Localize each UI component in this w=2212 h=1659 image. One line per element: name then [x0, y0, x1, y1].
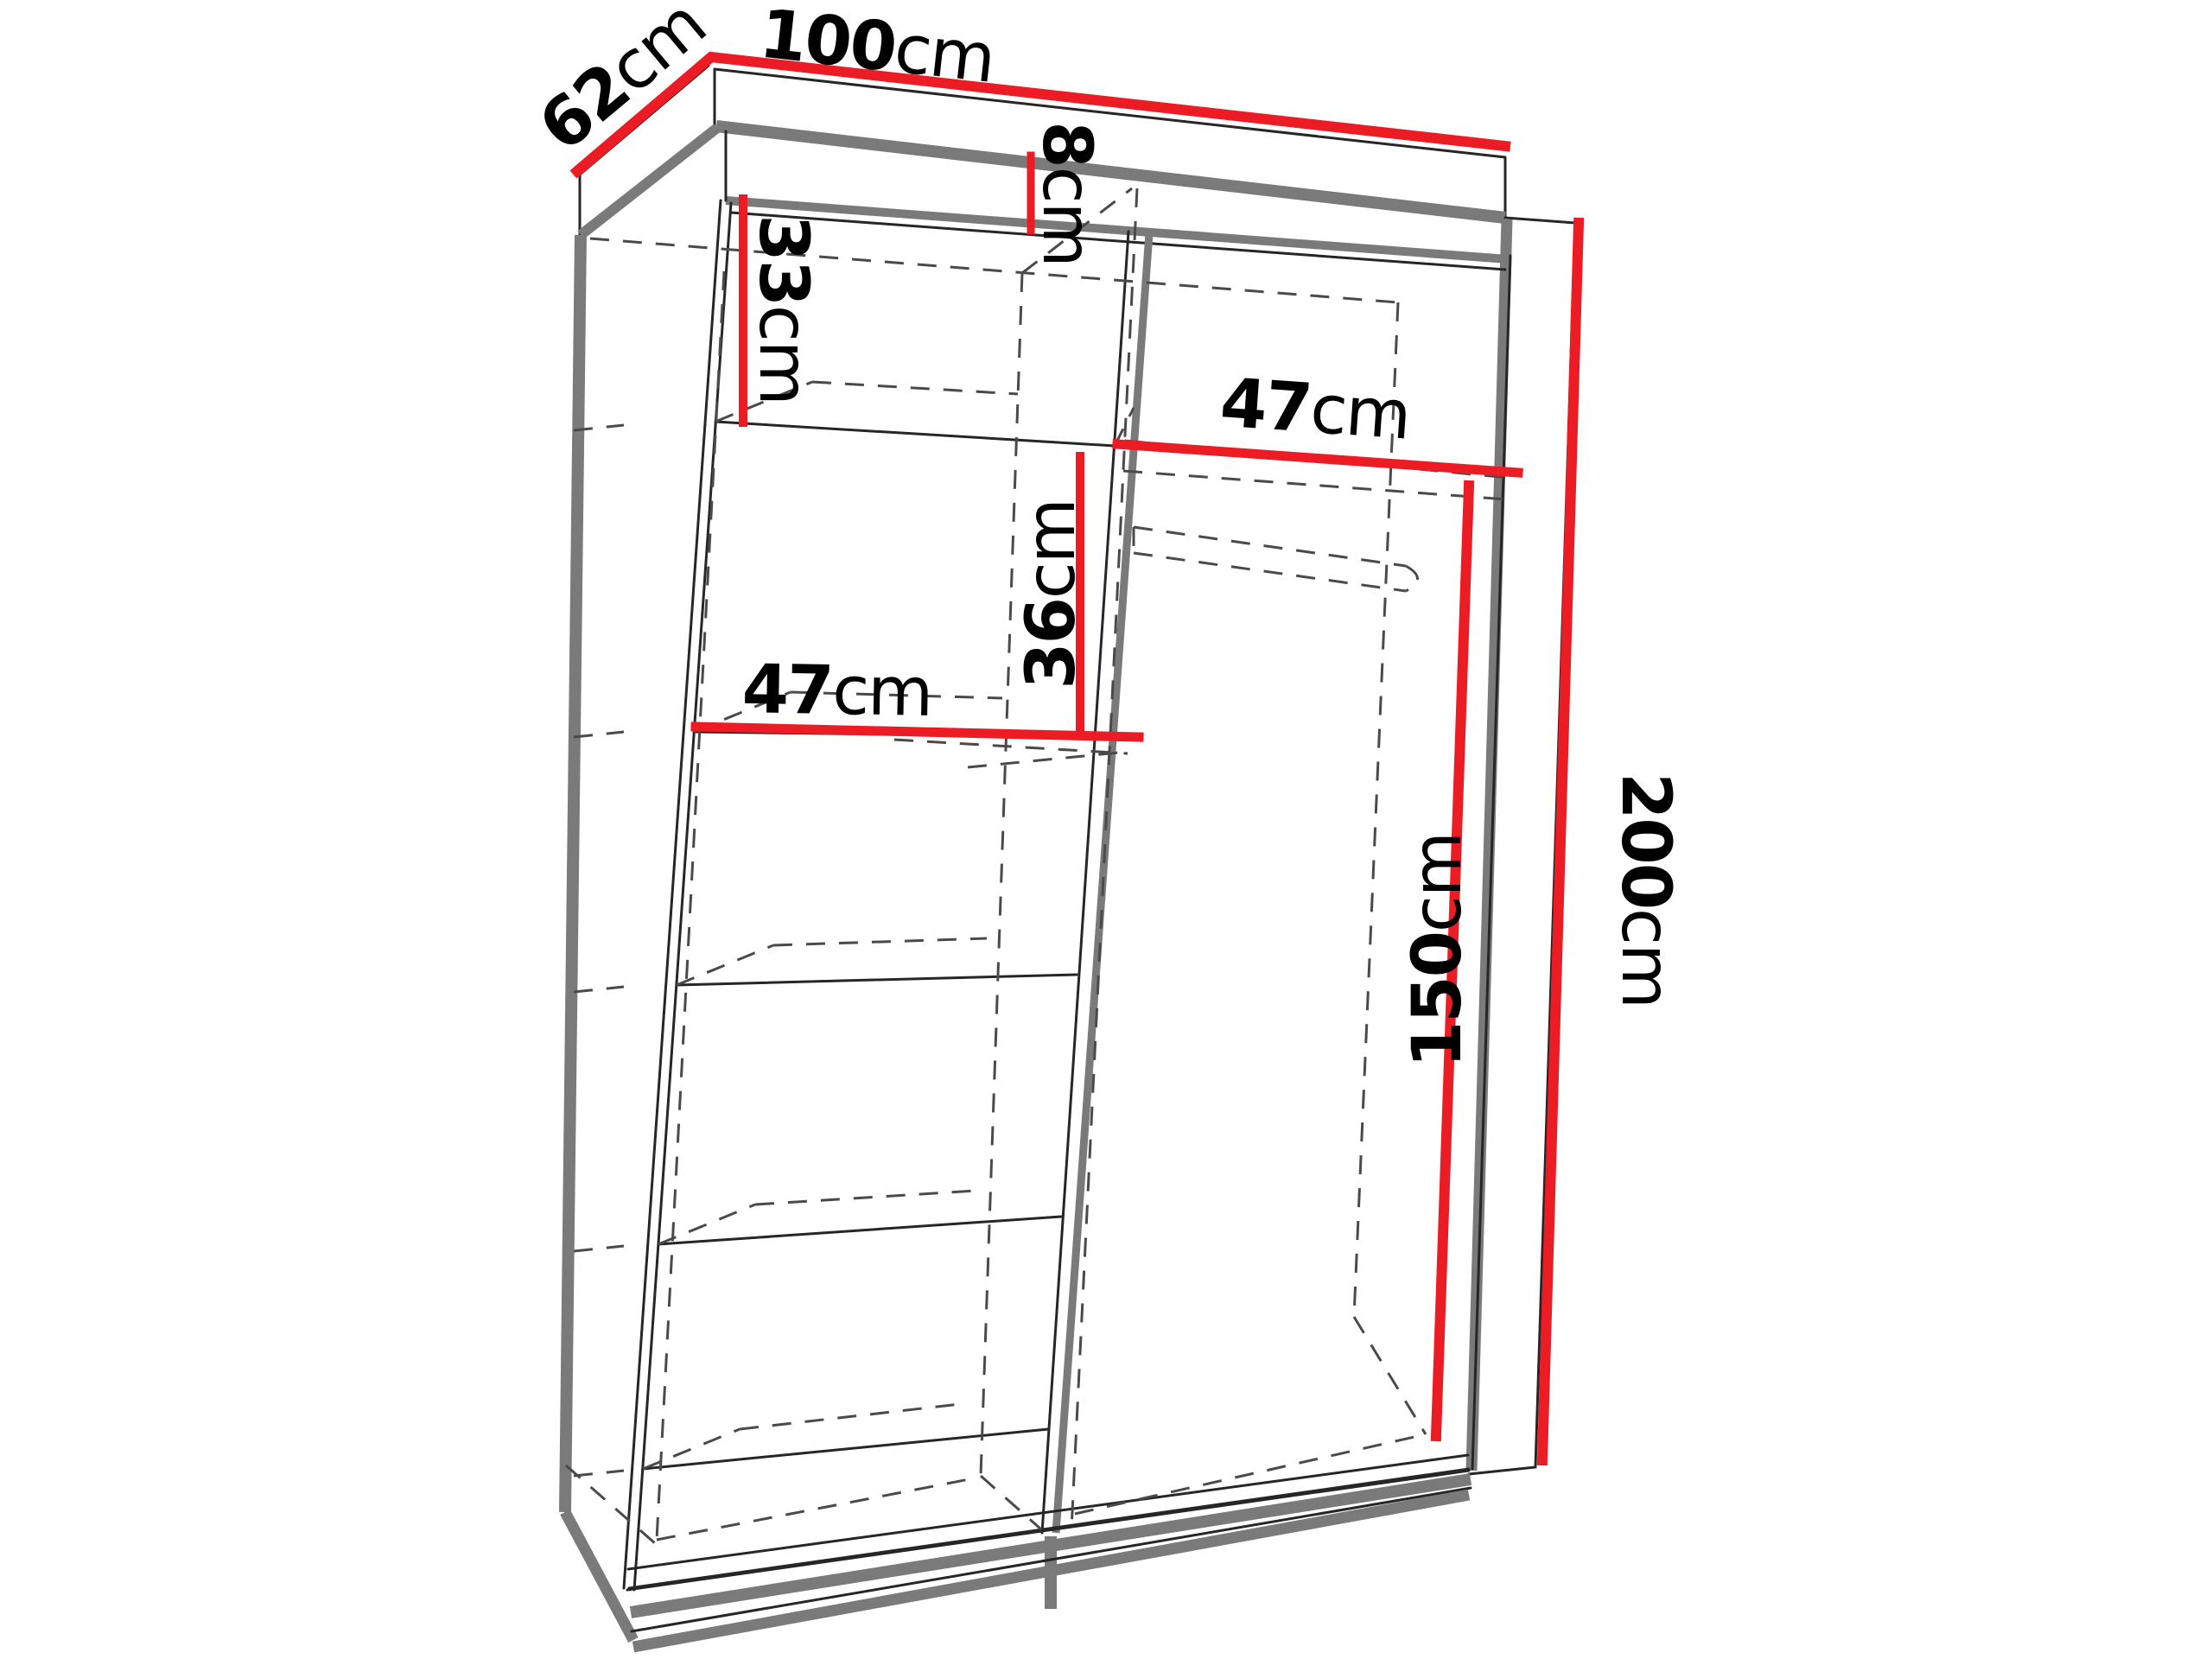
label-top-gap: 8cm — [1027, 121, 1105, 265]
left-base-diagonal — [565, 1512, 633, 1640]
dim-line-total-height — [1542, 223, 1579, 1460]
right-wall-inner-line — [1472, 256, 1510, 1469]
divider-back-edge — [981, 273, 1022, 1476]
label-width: 100cm — [756, 0, 998, 99]
label-hanging: 150cm — [1399, 833, 1477, 1068]
shelf-2-stub — [574, 732, 624, 737]
shelf-3-front — [677, 975, 1077, 985]
right-panel-top-edge — [1505, 218, 1575, 223]
label-center-gap: 36cm — [1013, 499, 1090, 689]
shelf-3-back — [773, 938, 987, 945]
ceiling-inner-line — [731, 213, 1505, 270]
right-panel-bottom-edge — [1469, 1467, 1535, 1474]
back-ceiling-edge — [590, 238, 1398, 302]
divider-back-right-edge — [1071, 188, 1137, 1529]
hanging-rail-bottom — [1134, 553, 1406, 591]
shelf-1-front — [715, 422, 1115, 446]
wardrobe-diagram: 100cm 62cm 8cm 33cm 47cm 36cm 47cm 150cm… — [0, 0, 2212, 1659]
shelf-4-front — [658, 1217, 1061, 1244]
right-panel-inner-edge — [1471, 219, 1507, 1471]
label-left-shelf: 47cm — [741, 651, 932, 732]
divider-back-foot — [981, 1476, 1041, 1529]
shelf-3-side — [677, 945, 773, 985]
shelf-4-stub — [574, 1246, 624, 1251]
shelf-2-under-b — [968, 752, 1128, 767]
shelf-5-back — [740, 1403, 968, 1429]
label-depth: 62cm — [524, 0, 720, 167]
label-total-height: 200cm — [1606, 772, 1684, 1007]
back-right-foot — [1354, 1317, 1426, 1434]
floor-back-left — [657, 1478, 978, 1540]
hanging-rail-cap — [1406, 566, 1418, 591]
shelf-3-stub — [574, 987, 624, 992]
divider-front-edge — [1042, 232, 1128, 1533]
diagram-stage: 100cm 62cm 8cm 33cm 47cm 36cm 47cm 150cm… — [0, 0, 2212, 1659]
hanging-rail-top — [1134, 527, 1406, 566]
label-right-shelf: 47cm — [1217, 365, 1412, 455]
left-outer-edge — [565, 235, 581, 1512]
label-left-top-shelf: 33cm — [744, 214, 822, 404]
back-right-corner — [1354, 302, 1398, 1317]
shelf-5-stub — [574, 1471, 624, 1476]
shelf-2-under-a — [894, 740, 1128, 753]
right-shelf-front-hidden — [1123, 471, 1507, 499]
shelf-1-back — [812, 382, 1018, 394]
left-inner-wall-front — [624, 200, 721, 1588]
plinth-line-3 — [632, 1488, 1471, 1631]
shelf-4-back — [755, 1191, 976, 1205]
shelf-5-front — [643, 1429, 1048, 1469]
